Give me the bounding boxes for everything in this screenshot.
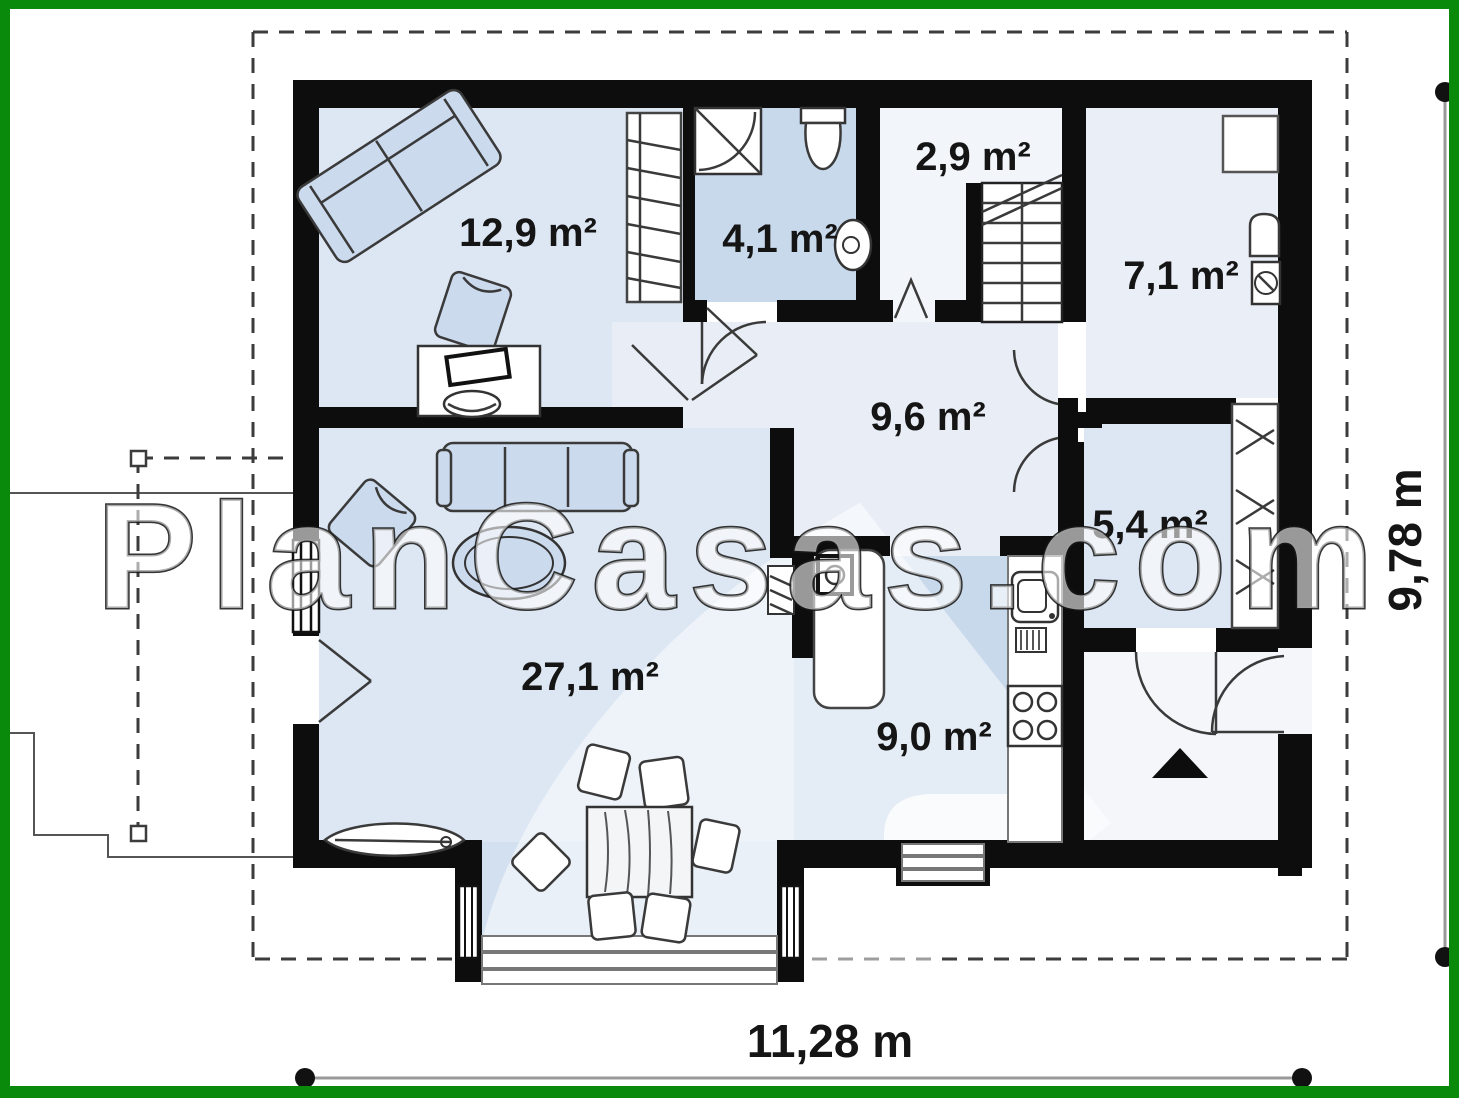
shower	[695, 108, 761, 174]
office-wardrobe	[627, 113, 681, 302]
corner-post-marker	[1278, 852, 1302, 876]
staircase	[982, 175, 1062, 322]
porch-right-window	[781, 886, 800, 958]
bathroom-area-label: 4,1 m²	[722, 217, 838, 261]
floor-plan-drawing: 12,9 m² 4,1 m² 2,9 m² 7,1 m² 9,6 m² 5,4 …	[0, 0, 1459, 1098]
washbasin	[835, 220, 871, 270]
entrance-floor	[1084, 652, 1278, 842]
desk-chair	[444, 391, 500, 417]
shelf	[1223, 116, 1278, 172]
dining-table	[587, 807, 692, 897]
bedroom-area-label: 7,1 m²	[1123, 254, 1239, 298]
kitchen-back-steps	[902, 844, 984, 881]
office-area-label: 12,9 m²	[459, 211, 597, 255]
watermark-text: PlanCasas.com	[97, 472, 1388, 640]
hall-area-label: 9,6 m²	[870, 395, 986, 439]
porch-left-window	[459, 886, 478, 958]
stair-hall-area-label: 2,9 m²	[915, 135, 1031, 179]
floor-plan-page: 12,9 m² 4,1 m² 2,9 m² 7,1 m² 9,6 m² 5,4 …	[0, 0, 1459, 1098]
living-area-label: 27,1 m²	[521, 655, 659, 699]
porch-steps	[482, 936, 777, 984]
kitchen-area-label: 9,0 m²	[876, 715, 992, 759]
desk	[418, 346, 540, 417]
width-dimension-label: 11,28 m	[747, 1015, 913, 1067]
